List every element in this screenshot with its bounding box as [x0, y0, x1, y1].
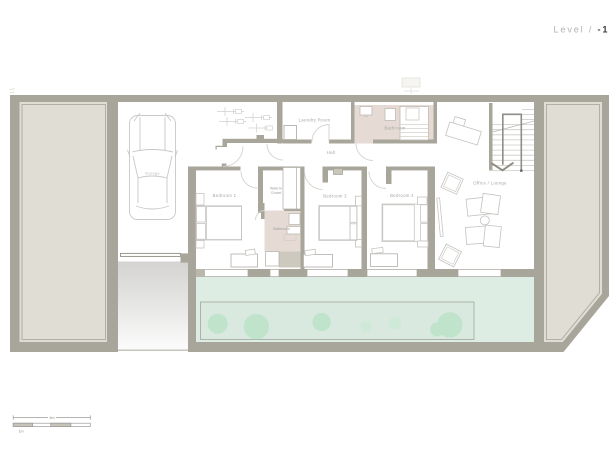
- svg-text:Bathroom: Bathroom: [384, 126, 405, 131]
- svg-text:Bathroom: Bathroom: [273, 227, 289, 231]
- svg-text:Laundry Room: Laundry Room: [299, 118, 331, 123]
- svg-text:Level / -1: Level / -1: [554, 25, 610, 35]
- svg-text:Closet: Closet: [271, 191, 283, 195]
- svg-text:Garage: Garage: [145, 171, 161, 176]
- svg-text:1m: 1m: [18, 429, 23, 433]
- svg-text:Bedroom 4: Bedroom 4: [390, 193, 414, 198]
- svg-text:Bedroom 1: Bedroom 1: [213, 193, 237, 198]
- svg-text:Hall: Hall: [327, 150, 336, 155]
- svg-text:4m: 4m: [49, 416, 54, 420]
- svg-text:Bedroom 3: Bedroom 3: [323, 194, 347, 199]
- svg-text:Walk-in: Walk-in: [270, 187, 283, 191]
- svg-text:Office / Lounge: Office / Lounge: [473, 181, 507, 186]
